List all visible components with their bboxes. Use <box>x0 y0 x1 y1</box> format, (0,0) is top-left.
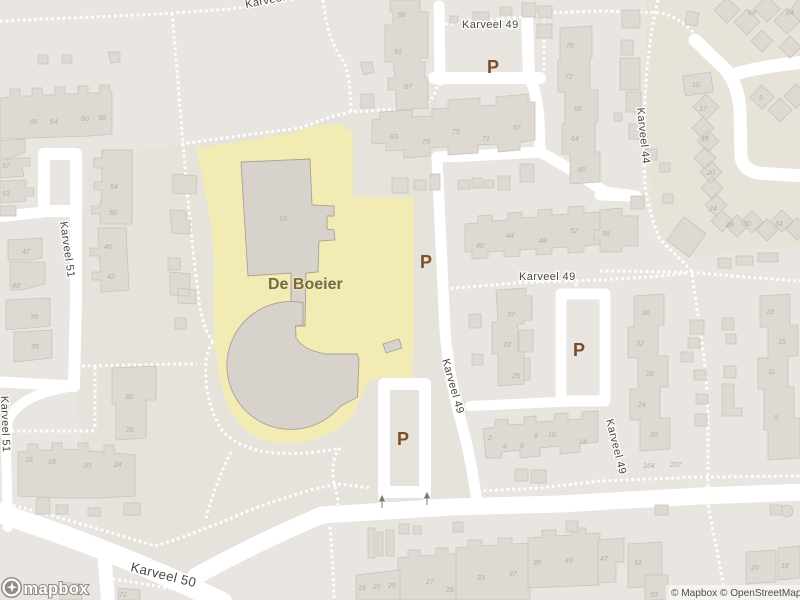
svg-text:16: 16 <box>701 136 709 143</box>
svg-text:34: 34 <box>775 221 783 228</box>
svg-text:18: 18 <box>781 563 789 570</box>
svg-text:17: 17 <box>699 106 708 113</box>
svg-text:35: 35 <box>31 344 39 351</box>
svg-text:P: P <box>487 57 499 77</box>
svg-text:79: 79 <box>422 139 430 146</box>
svg-text:18: 18 <box>25 457 33 464</box>
svg-text:64: 64 <box>786 10 794 17</box>
svg-text:36: 36 <box>642 310 650 317</box>
svg-text:4: 4 <box>503 444 507 451</box>
svg-text:24: 24 <box>637 402 646 409</box>
svg-text:20: 20 <box>750 565 759 572</box>
svg-text:60: 60 <box>81 116 89 123</box>
svg-text:96: 96 <box>398 12 406 19</box>
svg-text:39: 39 <box>30 314 38 321</box>
svg-text:19: 19 <box>279 216 287 223</box>
svg-text:10: 10 <box>548 432 556 439</box>
svg-text:42: 42 <box>107 274 115 281</box>
svg-text:20: 20 <box>82 463 91 470</box>
svg-text:© Mapbox © OpenStreetMap: © Mapbox © OpenStreetMap <box>671 588 800 599</box>
svg-text:87: 87 <box>404 84 413 91</box>
svg-text:Karveel 51: Karveel 51 <box>0 396 12 453</box>
svg-text:29: 29 <box>511 373 520 380</box>
svg-text:66: 66 <box>30 119 38 126</box>
svg-text:75: 75 <box>452 129 460 136</box>
svg-text:33: 33 <box>503 342 511 349</box>
svg-text:71: 71 <box>119 592 127 599</box>
svg-text:54: 54 <box>110 184 118 191</box>
svg-text:19: 19 <box>766 309 774 316</box>
svg-text:21: 21 <box>372 584 381 591</box>
svg-text:91: 91 <box>394 49 402 56</box>
svg-text:P: P <box>397 429 409 449</box>
svg-text:6: 6 <box>520 443 524 450</box>
svg-text:43: 43 <box>12 283 20 290</box>
svg-text:20: 20 <box>706 170 715 177</box>
svg-text:P: P <box>573 340 585 360</box>
svg-text:207: 207 <box>669 462 683 469</box>
svg-text:47: 47 <box>22 249 31 256</box>
svg-text:71: 71 <box>482 136 490 143</box>
svg-text:60: 60 <box>578 167 586 174</box>
svg-text:16: 16 <box>48 459 56 466</box>
svg-text:P: P <box>420 252 432 272</box>
svg-text:64: 64 <box>50 119 58 126</box>
svg-text:46: 46 <box>104 244 112 251</box>
svg-text:72: 72 <box>565 74 573 81</box>
svg-text:39: 39 <box>533 560 541 567</box>
svg-text:76: 76 <box>566 43 574 50</box>
svg-text:27: 27 <box>425 579 435 586</box>
svg-text:24: 24 <box>113 462 122 469</box>
svg-text:24: 24 <box>708 206 717 213</box>
svg-text:33: 33 <box>477 575 485 582</box>
svg-text:Karveel 49: Karveel 49 <box>519 271 576 283</box>
svg-text:47: 47 <box>600 556 609 563</box>
svg-text:30: 30 <box>743 221 751 228</box>
svg-text:53: 53 <box>650 592 658 599</box>
svg-text:57: 57 <box>2 163 11 170</box>
svg-text:19: 19 <box>358 585 366 592</box>
svg-text:28: 28 <box>725 222 734 229</box>
svg-text:8: 8 <box>534 433 538 440</box>
svg-text:2: 2 <box>487 435 492 442</box>
svg-text:mapbox: mapbox <box>24 580 90 598</box>
svg-text:58: 58 <box>98 115 106 122</box>
svg-text:25: 25 <box>387 583 396 590</box>
svg-text:53: 53 <box>2 191 10 198</box>
svg-text:14: 14 <box>579 439 587 446</box>
svg-text:30: 30 <box>125 394 133 401</box>
svg-text:9: 9 <box>759 95 763 102</box>
svg-text:De Boeier: De Boeier <box>268 276 343 293</box>
svg-text:28: 28 <box>645 371 654 378</box>
svg-text:44: 44 <box>506 233 514 240</box>
svg-text:51: 51 <box>634 560 642 567</box>
svg-text:52: 52 <box>570 228 578 235</box>
svg-text:40: 40 <box>476 243 484 250</box>
svg-text:43: 43 <box>565 558 573 565</box>
svg-text:48: 48 <box>539 238 547 245</box>
svg-text:164: 164 <box>643 463 655 470</box>
svg-text:68: 68 <box>574 106 582 113</box>
svg-text:50: 50 <box>109 210 117 217</box>
svg-text:67: 67 <box>513 125 522 132</box>
svg-text:26: 26 <box>125 427 134 434</box>
svg-text:10: 10 <box>692 82 700 89</box>
svg-text:56: 56 <box>602 231 610 238</box>
svg-text:29: 29 <box>445 587 454 594</box>
svg-text:37: 37 <box>509 571 518 578</box>
svg-text:20: 20 <box>649 432 658 439</box>
svg-text:37: 37 <box>507 312 516 319</box>
svg-text:5: 5 <box>774 415 778 422</box>
svg-text:15: 15 <box>778 339 786 346</box>
svg-text:64: 64 <box>571 136 579 143</box>
svg-text:32: 32 <box>636 341 644 348</box>
svg-text:83: 83 <box>390 134 398 141</box>
svg-text:11: 11 <box>768 369 775 376</box>
svg-text:68: 68 <box>748 10 756 17</box>
svg-text:Karveel 49: Karveel 49 <box>462 19 519 31</box>
